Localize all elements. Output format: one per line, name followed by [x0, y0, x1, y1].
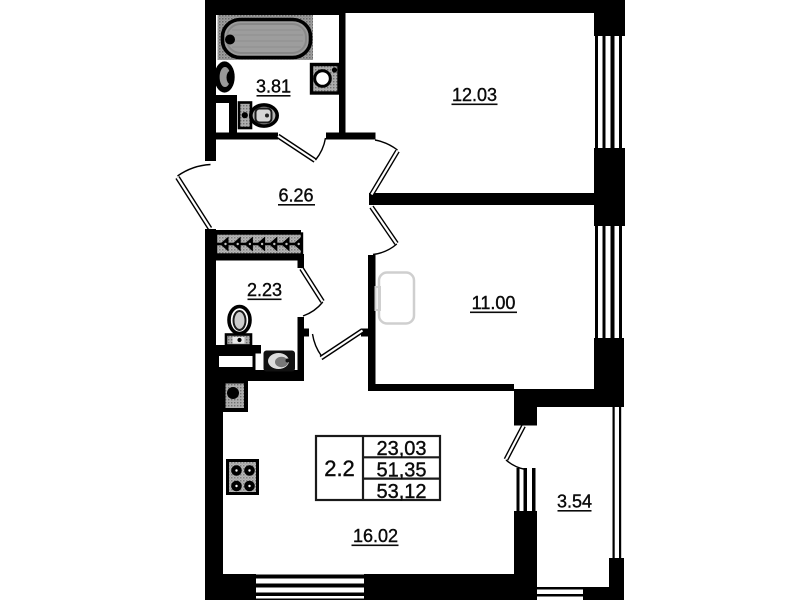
- svg-text:51,35: 51,35: [376, 460, 426, 482]
- svg-text:16.02: 16.02: [353, 526, 398, 546]
- svg-text:6.26: 6.26: [278, 186, 313, 206]
- svg-text:2.23: 2.23: [247, 280, 282, 300]
- svg-text:3.54: 3.54: [557, 492, 592, 512]
- svg-text:23,03: 23,03: [376, 438, 426, 460]
- svg-text:2.2: 2.2: [324, 456, 355, 481]
- svg-text:3.81: 3.81: [256, 77, 291, 97]
- svg-text:11.00: 11.00: [472, 293, 516, 313]
- svg-text:53,12: 53,12: [376, 481, 426, 503]
- svg-text:12.03: 12.03: [452, 85, 497, 105]
